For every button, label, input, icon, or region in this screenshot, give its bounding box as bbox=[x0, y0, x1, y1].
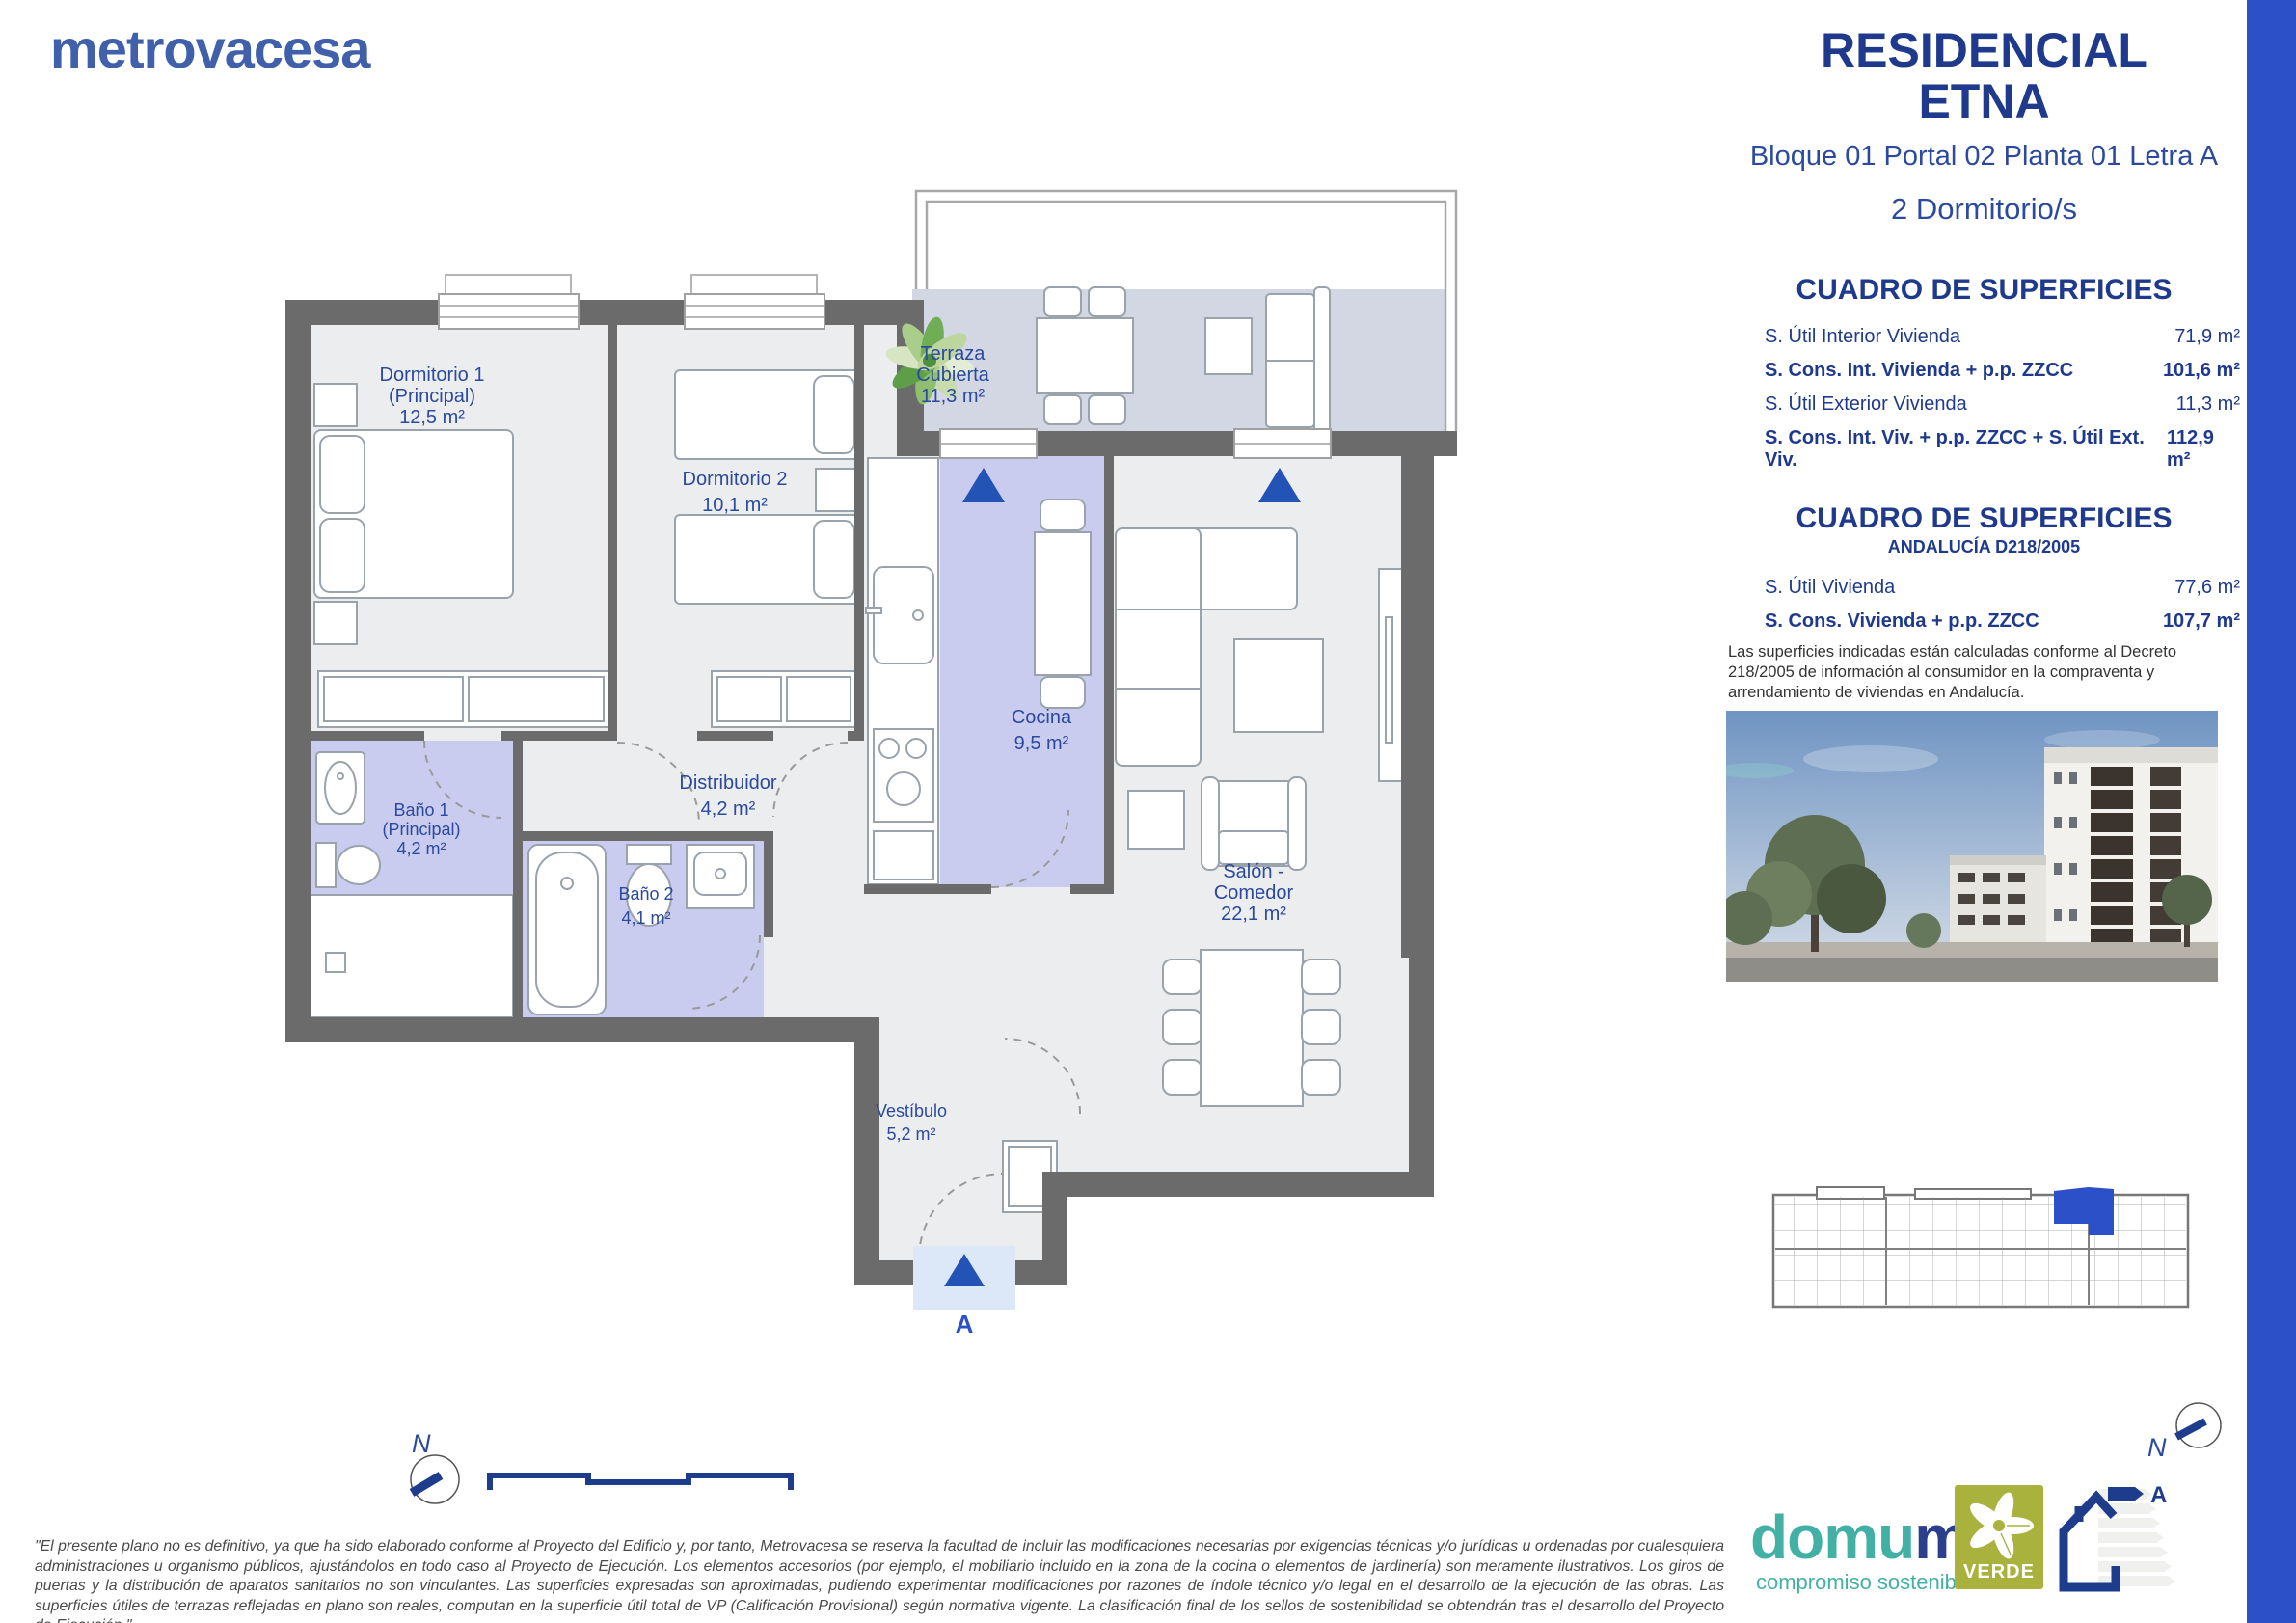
side-table bbox=[1128, 791, 1184, 849]
room-label: Vestíbulo bbox=[876, 1101, 947, 1121]
row-value: 77,6 m² bbox=[2174, 577, 2240, 599]
entrance-letter: A bbox=[956, 1310, 974, 1339]
north-letter: N bbox=[412, 1429, 431, 1458]
table-row: S. Cons. Int. Viv. + p.p. ZZCC + S. Útil… bbox=[1726, 421, 2242, 477]
room-label: (Principal) bbox=[382, 820, 460, 839]
north-letter: N bbox=[2147, 1433, 2167, 1462]
room-label: Cubierta bbox=[916, 365, 989, 386]
andalucia-table-subtitle: ANDALUCÍA D218/2005 bbox=[1726, 537, 2242, 557]
domum-logo-text: domu bbox=[1750, 1502, 1914, 1572]
wardrobe bbox=[712, 671, 858, 727]
table-row: S. Cons. Vivienda + p.p. ZZCC107,7 m² bbox=[1726, 605, 2242, 638]
dining-table bbox=[1163, 950, 1340, 1106]
locator-plan bbox=[1770, 1179, 2191, 1316]
surfaces-tables: CUADRO DE SUPERFICIES S. Útil Interior V… bbox=[1726, 274, 2242, 703]
room-label: 4,2 m² bbox=[701, 798, 756, 820]
andalucia-table-title: CUADRO DE SUPERFICIES bbox=[1726, 502, 2242, 535]
wardrobe bbox=[318, 671, 609, 727]
north-compass-icon: N bbox=[381, 1416, 497, 1522]
room-label: Comedor bbox=[1214, 882, 1294, 904]
unit-location: Bloque 01 Portal 02 Planta 01 Letra A bbox=[1726, 141, 2242, 173]
row-label: S. Útil Interior Vivienda bbox=[1765, 326, 1960, 348]
verde-label: VERDE bbox=[1955, 1561, 2043, 1583]
room-label: Baño 2 bbox=[618, 884, 673, 904]
row-value: 101,6 m² bbox=[2163, 360, 2240, 382]
row-value: 107,7 m² bbox=[2163, 610, 2240, 633]
room-label: Terraza bbox=[921, 343, 986, 365]
toilet bbox=[627, 845, 671, 864]
room-label: 22,1 m² bbox=[1221, 904, 1286, 925]
surfaces-table: CUADRO DE SUPERFICIES S. Útil Interior V… bbox=[1726, 274, 2242, 477]
room-label: (Principal) bbox=[389, 386, 475, 407]
room-label: 4,2 m² bbox=[396, 839, 446, 858]
room-label: 4,1 m² bbox=[621, 908, 670, 928]
room-label: 5,2 m² bbox=[886, 1124, 935, 1144]
row-value: 112,9 m² bbox=[2167, 427, 2240, 472]
row-label: S. Útil Exterior Vivienda bbox=[1765, 393, 1967, 416]
energy-rating-letter: A bbox=[2150, 1482, 2167, 1508]
terraza-floor bbox=[912, 289, 1445, 444]
table-row: S. Útil Vivienda77,6 m² bbox=[1726, 571, 2242, 605]
armchair bbox=[1202, 777, 1306, 870]
energy-rating-icon: A bbox=[2052, 1472, 2197, 1601]
table-row: S. Útil Interior Vivienda71,9 m² bbox=[1726, 320, 2242, 354]
room-label: Dormitorio 2 bbox=[683, 469, 788, 490]
verde-certification-badge: VERDE bbox=[1955, 1485, 2043, 1589]
room-label: 11,3 m² bbox=[921, 386, 986, 407]
bedroom-count: 2 Dormitorio/s bbox=[1726, 192, 2242, 227]
page-title-line1: RESIDENCIAL bbox=[1726, 25, 2242, 76]
building-render-image bbox=[1726, 711, 2218, 982]
row-value: 71,9 m² bbox=[2174, 326, 2240, 348]
right-accent-bar bbox=[2247, 0, 2296, 1623]
scale-bar bbox=[482, 1464, 800, 1495]
entrance-marker bbox=[913, 1246, 1015, 1310]
floor-plan: A Dormitorio 1 (Principal) 12,5 m² Dorm bbox=[270, 174, 1466, 1340]
verde-leaf-icon bbox=[1955, 1485, 2043, 1564]
plan-sheet: metrovacesa RESIDENCIAL ETNA Bloque 01 P… bbox=[0, 0, 2296, 1623]
andalucia-note: Las superficies indicadas están calculad… bbox=[1726, 642, 2242, 703]
room-label: Distribuidor bbox=[679, 772, 776, 794]
page-title-line2: ETNA bbox=[1726, 76, 2242, 127]
table-row: S. Útil Exterior Vivienda11,3 m² bbox=[1726, 388, 2242, 421]
row-label: S. Cons. Vivienda + p.p. ZZCC bbox=[1765, 610, 2039, 633]
row-label: S. Cons. Int. Vivienda + p.p. ZZCC bbox=[1765, 360, 2073, 382]
row-label: S. Cons. Int. Viv. + p.p. ZZCC + S. Útil… bbox=[1765, 427, 2167, 472]
coffee-table bbox=[1234, 639, 1323, 732]
room-label: Baño 1 bbox=[393, 800, 448, 820]
kitchen-sink bbox=[874, 567, 933, 663]
room-label: Dormitorio 1 bbox=[380, 365, 485, 386]
room-label: Cocina bbox=[1012, 707, 1072, 728]
metrovacesa-logo: metrovacesa bbox=[50, 17, 369, 80]
row-value: 11,3 m² bbox=[2176, 393, 2240, 416]
table-row: S. Cons. Int. Vivienda + p.p. ZZCC101,6 … bbox=[1726, 354, 2242, 388]
title-block: RESIDENCIAL ETNA Bloque 01 Portal 02 Pla… bbox=[1726, 25, 2242, 227]
room-label: 9,5 m² bbox=[1014, 733, 1069, 754]
surfaces-table-title: CUADRO DE SUPERFICIES bbox=[1726, 274, 2242, 307]
room-label: 12,5 m² bbox=[399, 407, 465, 428]
legal-disclaimer: "El presente plano no es definitivo, ya … bbox=[35, 1537, 1724, 1623]
andalucia-table: CUADRO DE SUPERFICIES ANDALUCÍA D218/200… bbox=[1726, 502, 2242, 703]
stove bbox=[874, 729, 933, 822]
room-label: 10,1 m² bbox=[702, 495, 768, 516]
kitchen-counter bbox=[866, 458, 938, 884]
row-label: S. Útil Vivienda bbox=[1765, 577, 1895, 599]
room-label: Salón - bbox=[1223, 861, 1283, 882]
